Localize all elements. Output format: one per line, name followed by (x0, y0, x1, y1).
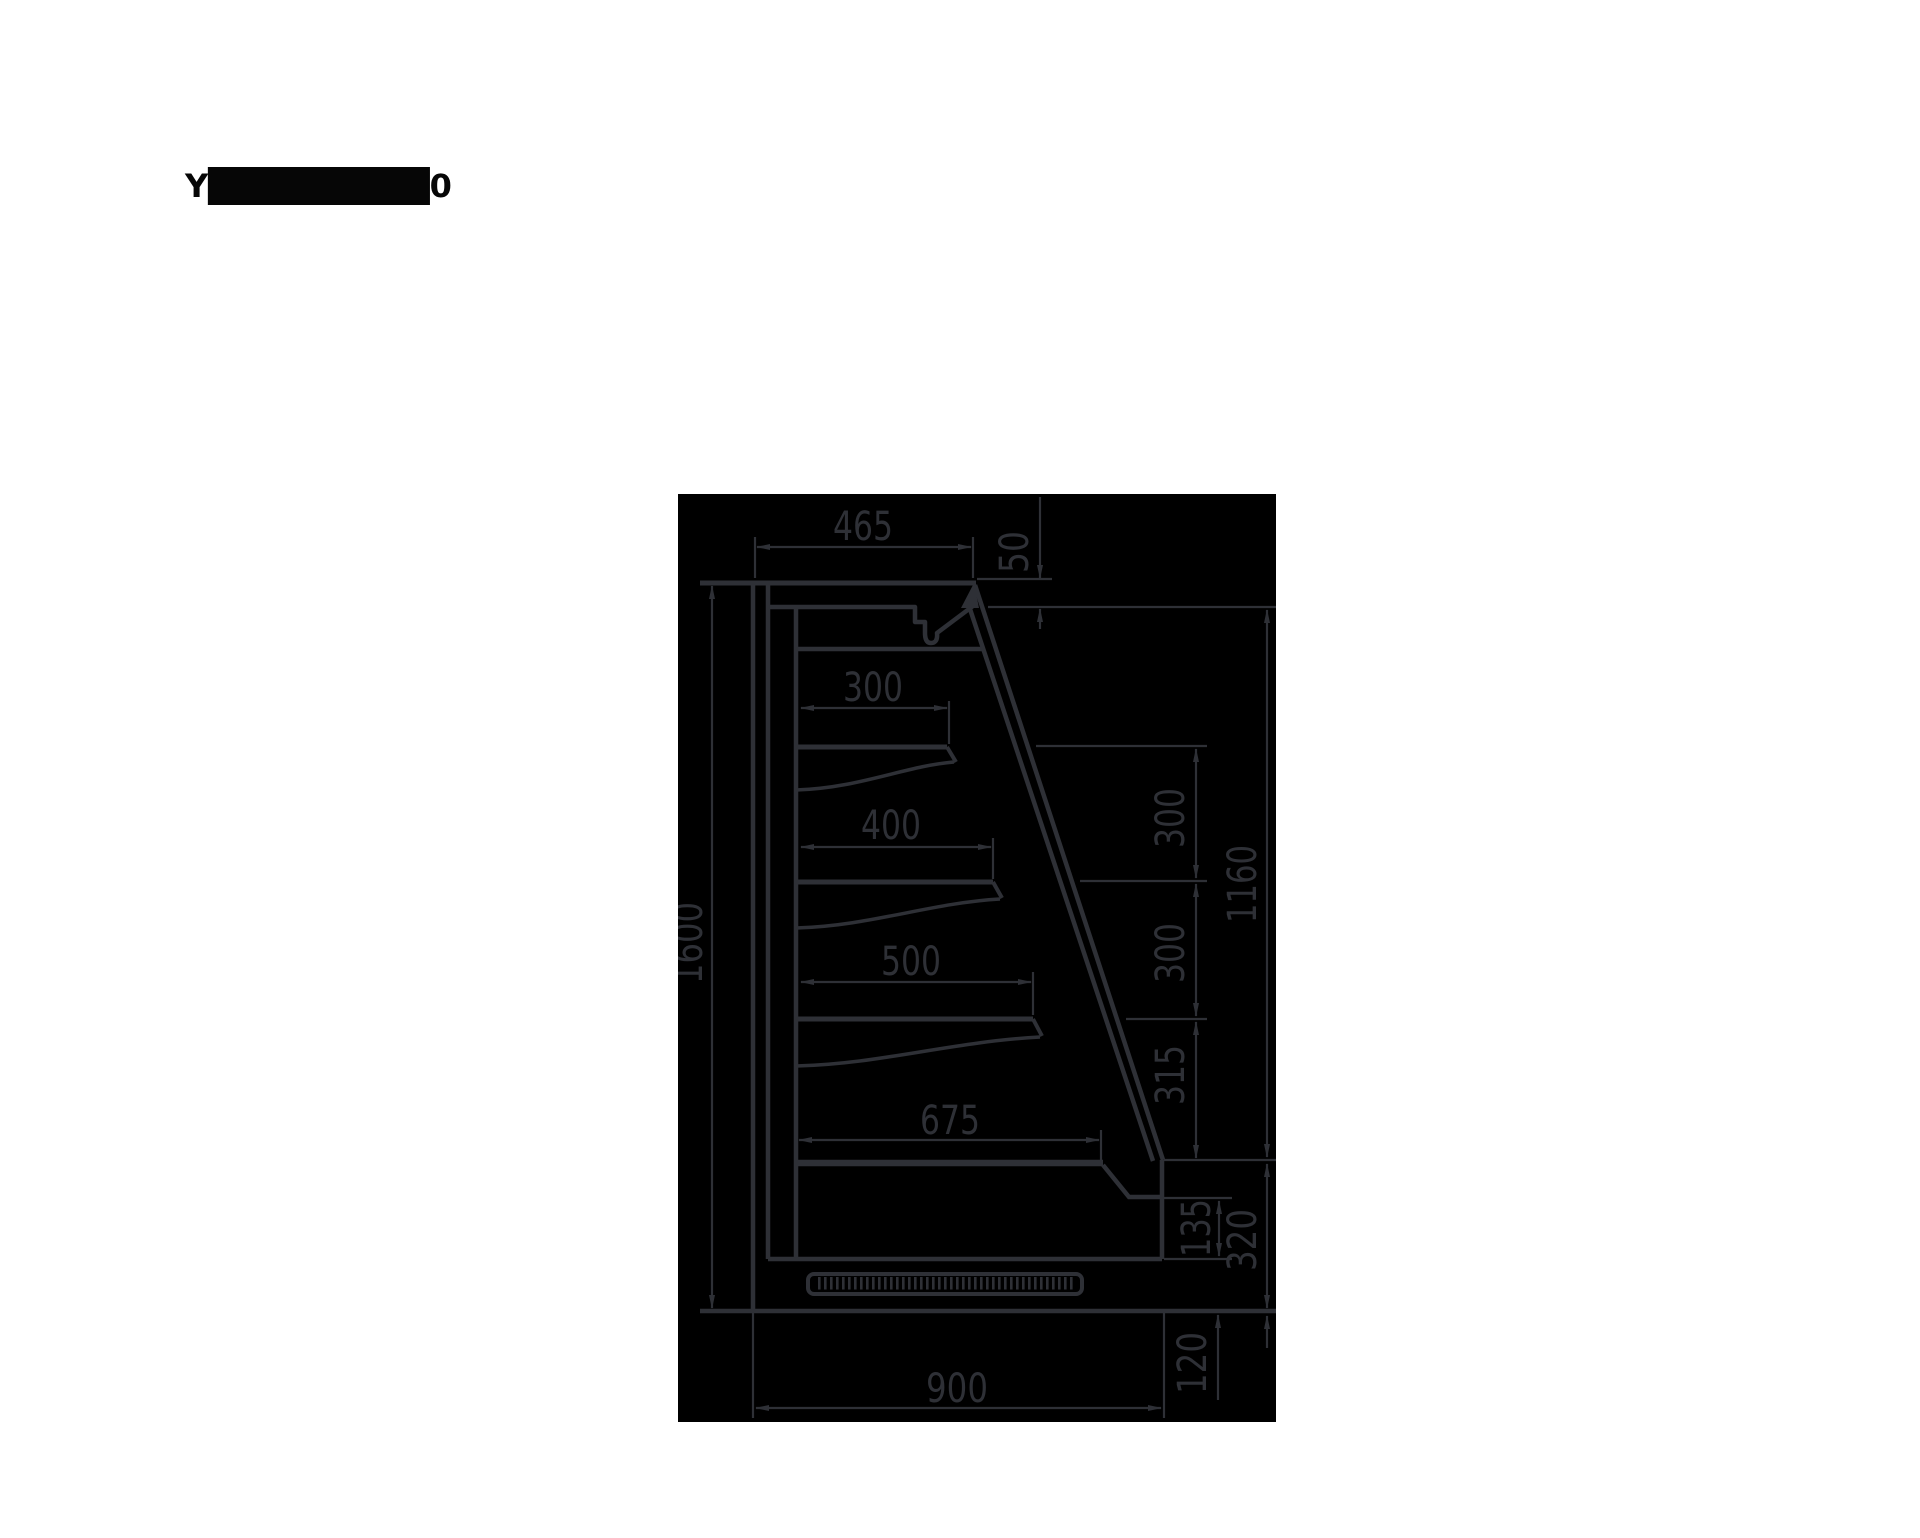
dim-label-1160: 1160 (1220, 845, 1266, 923)
shelf-3-bracket-curve (796, 1037, 1040, 1066)
dim-label-315: 315 (1148, 1045, 1194, 1105)
dim-label-675: 675 (920, 1098, 980, 1144)
cooler-section-drawing: 465 50 1600 300 400 500 675 900 300 300 … (678, 494, 1276, 1422)
shelf-3-front (1033, 1019, 1042, 1036)
dim-label-300-shelf1: 300 (843, 665, 903, 711)
dim-label-900: 900 (926, 1366, 988, 1412)
front-glass-outer (975, 585, 1163, 1160)
dim-label-120: 120 (1170, 1332, 1216, 1394)
dim-label-1600: 1600 (678, 902, 712, 984)
shelf-1-front (947, 747, 956, 762)
technical-drawing-panel: 465 50 1600 300 400 500 675 900 300 300 … (678, 494, 1276, 1422)
page-title: Y█████████0 (185, 170, 452, 202)
deck-bumper-bevel (1103, 1165, 1162, 1197)
dim-label-500: 500 (881, 939, 941, 985)
front-glass-inner (969, 606, 1153, 1161)
page: { "page": { "background": "#ffffff", "ti… (0, 0, 1920, 1538)
vent-grille-louvers (816, 1277, 1074, 1290)
dim-label-135: 135 (1174, 1199, 1220, 1257)
dim-label-320: 320 (1220, 1209, 1266, 1271)
dim-label-465: 465 (833, 504, 893, 550)
shelf-1-bracket-curve (796, 762, 954, 790)
dim-label-300-gap-upper: 300 (1148, 788, 1194, 848)
dim-label-50: 50 (992, 531, 1038, 573)
shelf-2-bracket-curve (796, 899, 1000, 928)
shelf-2-front (993, 882, 1002, 898)
canopy-profile (768, 606, 973, 643)
dim-label-400: 400 (861, 803, 921, 849)
dim-label-300-gap-lower: 300 (1148, 923, 1194, 983)
